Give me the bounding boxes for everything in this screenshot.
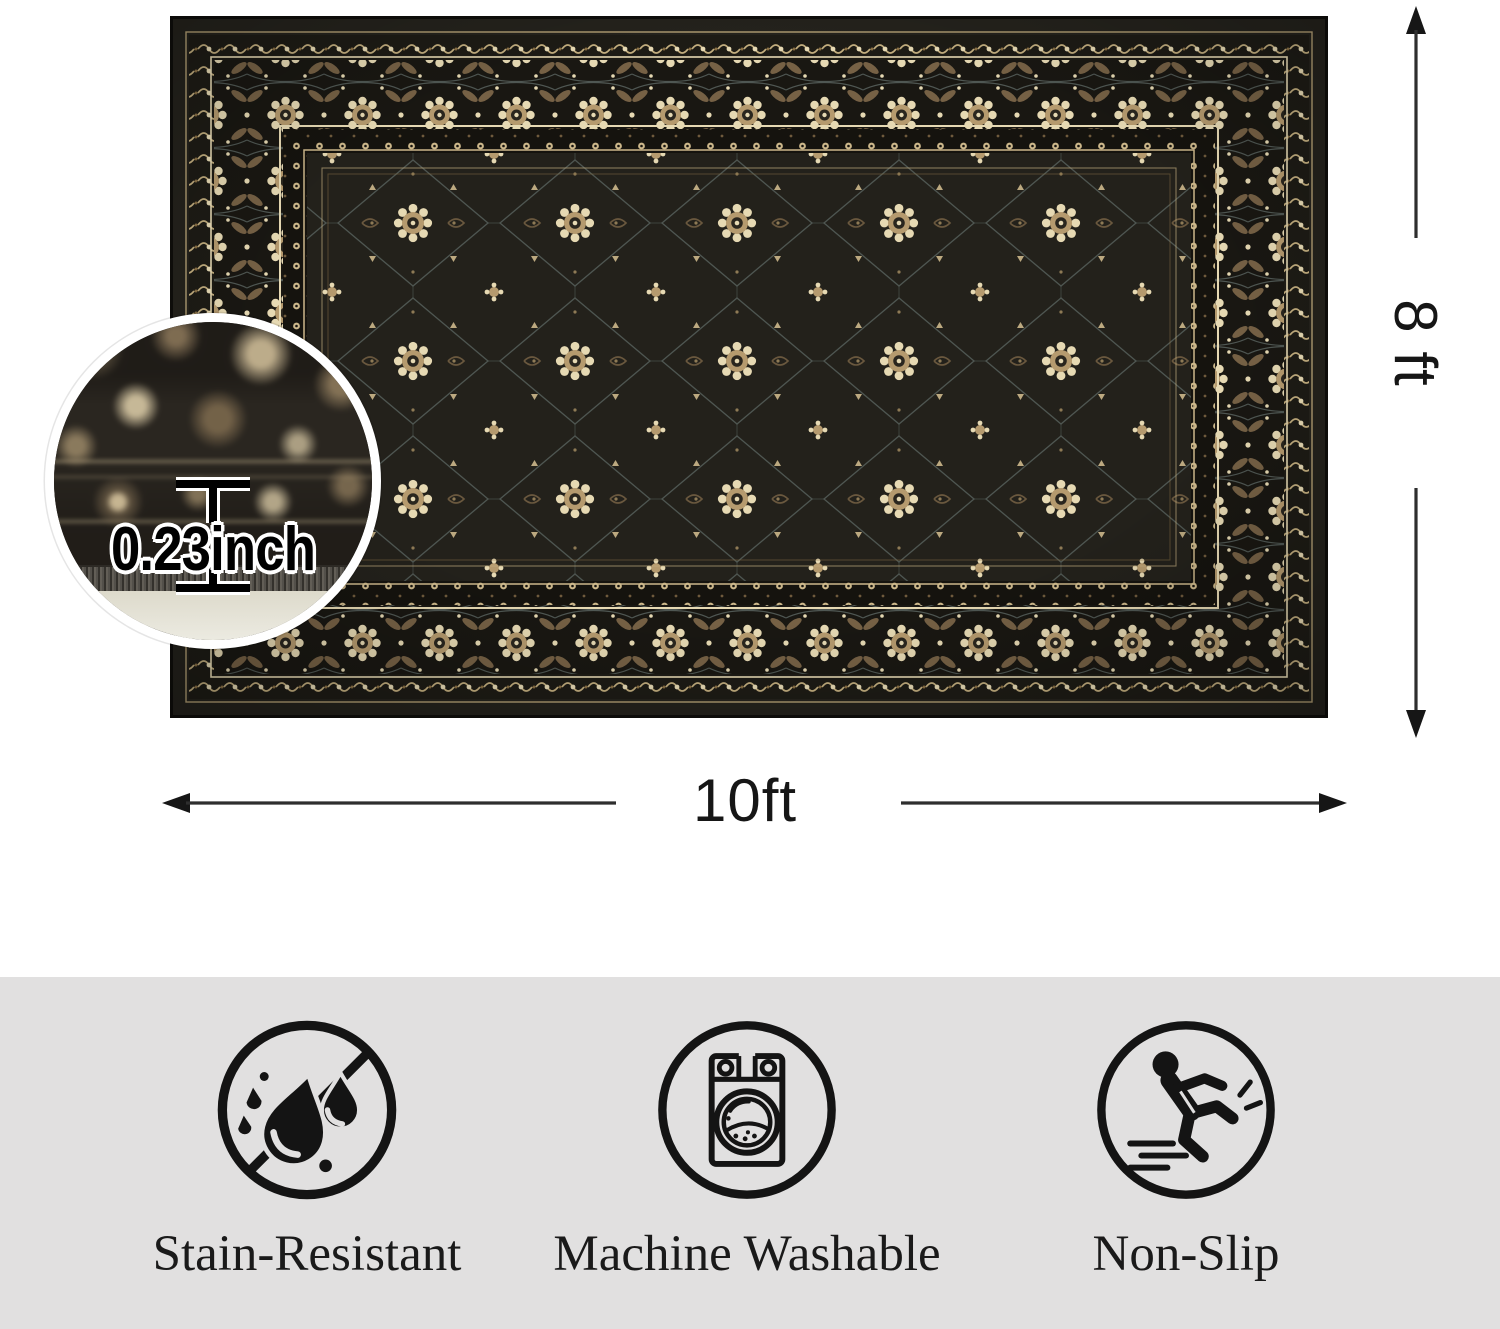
feature-non-slip: Non-Slip [1006,977,1366,1280]
feature-label: Stain-Resistant [153,1229,462,1280]
width-label: 10ft [600,771,890,831]
arrow-right-icon [1319,793,1347,813]
thickness-ibeam-icon [54,322,372,640]
feature-label: Machine Washable [553,1229,940,1280]
non-slip-icon [1093,1017,1279,1203]
feature-stain-resistant: Stain-Resistant [127,977,487,1280]
arrow-down-icon [1406,710,1426,738]
product-infographic: 0.23inch 8 ft 10ft [0,0,1500,1329]
features-band: Stain-Resistant [0,977,1500,1329]
thickness-magnifier: 0.23inch [45,313,381,649]
feature-label: Non-Slip [1092,1229,1279,1280]
height-label: 8 ft [1346,273,1486,413]
arrow-left-icon [162,793,190,813]
machine-washable-icon [654,1017,840,1203]
stain-resistant-icon [214,1017,400,1203]
arrow-up-icon [1406,6,1426,34]
thickness-label: 0.23inch [61,519,365,581]
feature-machine-washable: Machine Washable [567,977,927,1280]
